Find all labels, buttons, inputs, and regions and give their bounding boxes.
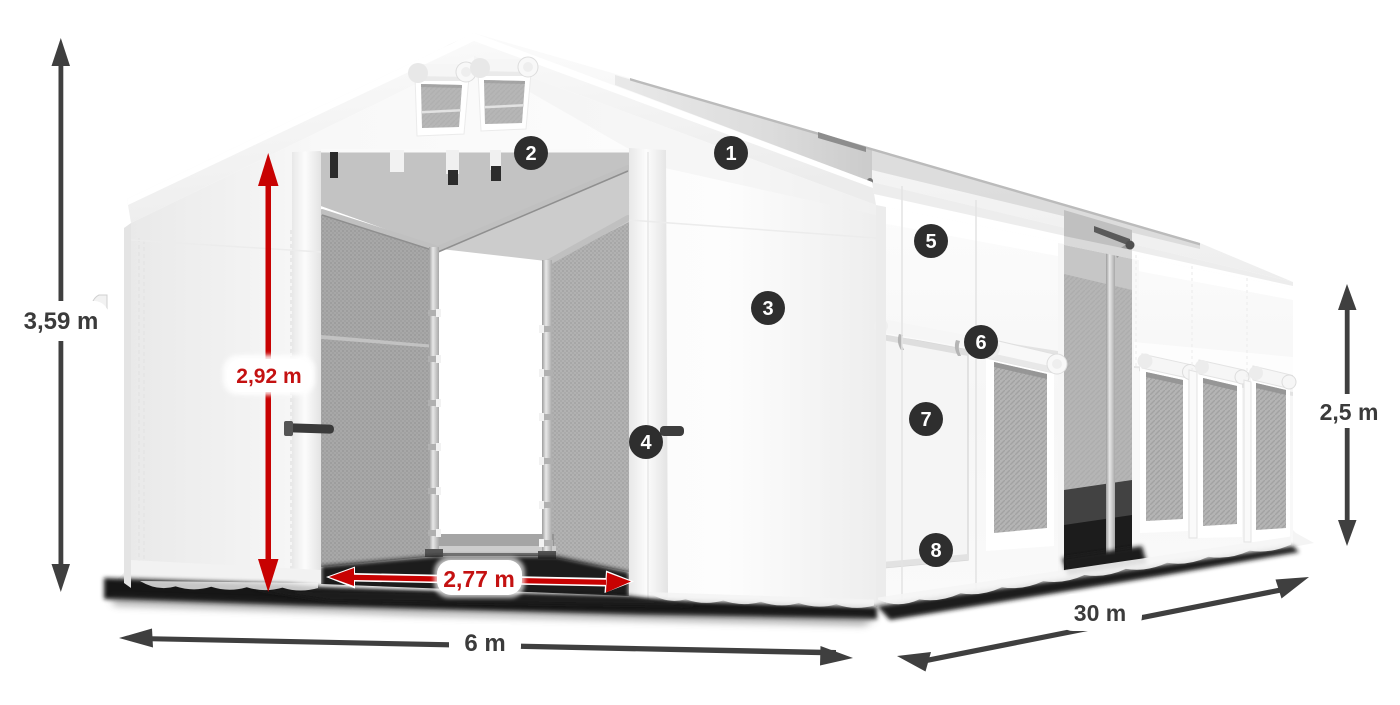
svg-text:2,77 m: 2,77 m	[443, 566, 515, 592]
svg-text:3,59 m: 3,59 m	[24, 308, 99, 335]
svg-text:5: 5	[925, 231, 936, 253]
svg-text:2,5 m: 2,5 m	[1320, 399, 1379, 425]
svg-text:1: 1	[725, 143, 736, 165]
svg-text:2: 2	[525, 143, 536, 165]
svg-text:8: 8	[930, 540, 941, 562]
svg-text:3: 3	[762, 298, 773, 320]
svg-text:2,92 m: 2,92 m	[236, 365, 301, 388]
svg-text:6 m: 6 m	[464, 630, 505, 657]
svg-text:30 m: 30 m	[1074, 600, 1126, 626]
svg-text:6: 6	[975, 332, 986, 354]
svg-text:7: 7	[920, 409, 931, 431]
svg-text:4: 4	[640, 432, 652, 454]
